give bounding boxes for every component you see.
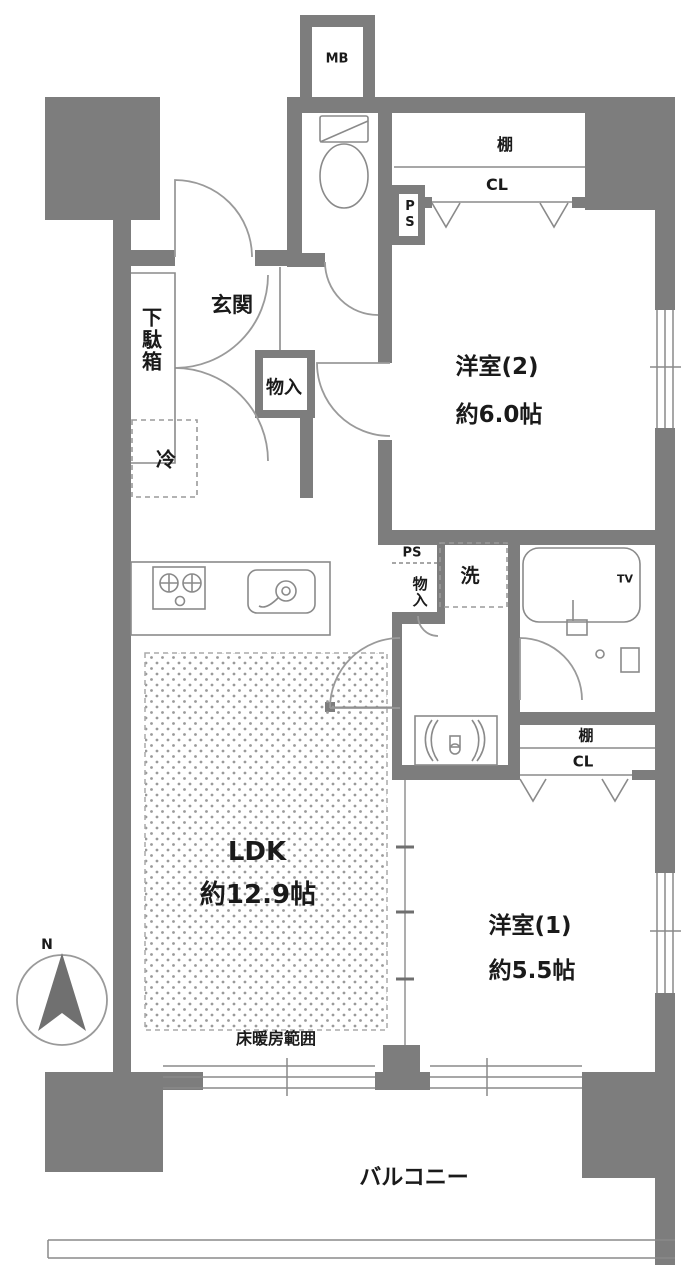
ldk-size: 約12.9帖: [200, 881, 316, 911]
western-room-1-name: 洋室(1): [488, 913, 571, 939]
compass-north-label: N: [41, 937, 53, 953]
floor-plan-drawing: [0, 0, 700, 1276]
refrigerator-label: 冷: [156, 449, 176, 472]
closet-right-label: CL: [573, 753, 594, 770]
western-room-2-door: [317, 363, 390, 436]
western-room-2-size: 約6.0帖: [456, 402, 543, 428]
bathroom-door: [520, 638, 582, 700]
window-room2: [650, 310, 681, 428]
entrance-label: 玄関: [211, 293, 253, 317]
closet-top-label: CL: [486, 176, 508, 194]
western-room-2-name: 洋室(2): [455, 354, 538, 380]
window-room1: [650, 873, 681, 993]
vanity: [415, 716, 497, 765]
toilet-fixture: [320, 116, 368, 208]
shelf-right-label: 棚: [578, 727, 593, 744]
balcony-sliding-right: [430, 1058, 582, 1096]
floor-heating-label: 床暖房範囲: [236, 1030, 316, 1048]
balcony-label: バルコニー: [359, 1165, 469, 1190]
floor-plan: MB PS 棚 CL 洋室(2) 約6.0帖 玄関 下駄箱 物入 冷 PS 物入…: [0, 0, 700, 1276]
balcony-edge: [48, 1240, 675, 1258]
kitchen-counter: [131, 562, 330, 635]
entrance-door: [175, 180, 252, 257]
shoe-cabinet-label: 下駄箱: [139, 307, 162, 373]
ldk-name: LDK: [228, 838, 286, 868]
bath-tv-label: TV: [617, 574, 633, 587]
hall-storage-label: 物入: [410, 576, 427, 608]
western-room-1-size: 約5.5帖: [489, 958, 576, 984]
pipe-space-top-label: PS: [402, 199, 417, 231]
toilet-door: [325, 262, 378, 315]
entrance-storage-label: 物入: [266, 379, 302, 400]
compass: [17, 953, 107, 1045]
balcony-sliding-left: [163, 1058, 375, 1096]
bathtub: [523, 548, 640, 672]
washer-label: 洗: [460, 566, 479, 588]
compass-needle: [38, 953, 86, 1031]
shelf-top-label: 棚: [497, 136, 513, 154]
meter-box-label: MB: [326, 53, 349, 68]
pipe-space-mid-label: PS: [403, 547, 422, 562]
